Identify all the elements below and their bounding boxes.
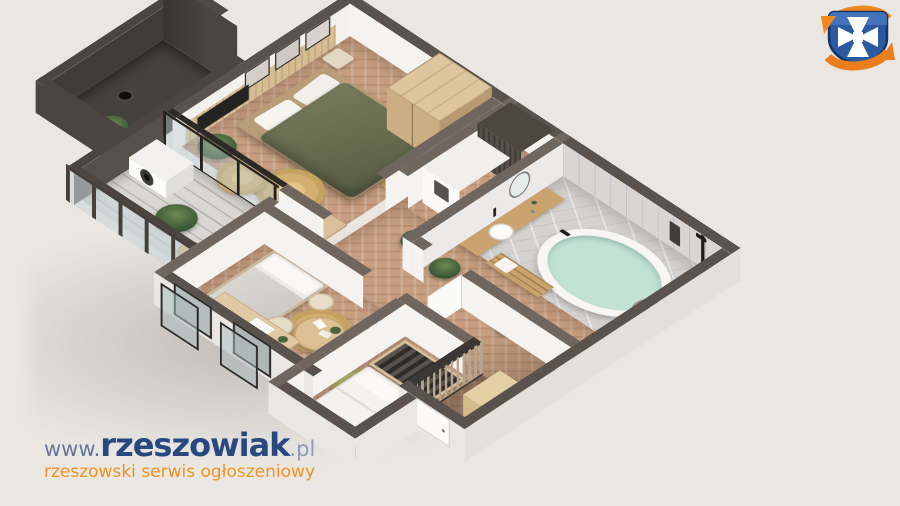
appliance-panel — [434, 179, 448, 203]
floorplan-screenshot: www.rzeszowiak.pl rzeszowski serwis ogło… — [0, 0, 900, 506]
watermark-brand: rzeszowiak — [100, 429, 289, 461]
watermark-tld: .pl — [289, 439, 315, 460]
watermark-tagline: rzeszowski serwis ogłoszeniowy — [44, 464, 315, 481]
watermark: www.rzeszowiak.pl rzeszowski serwis ogło… — [44, 429, 315, 481]
basin-tap-icon — [493, 207, 496, 217]
watermark-www: www. — [44, 439, 100, 460]
watermark-domain: www.rzeszowiak.pl — [44, 429, 315, 461]
rzeszowiak-crest-logo-icon — [818, 4, 898, 72]
